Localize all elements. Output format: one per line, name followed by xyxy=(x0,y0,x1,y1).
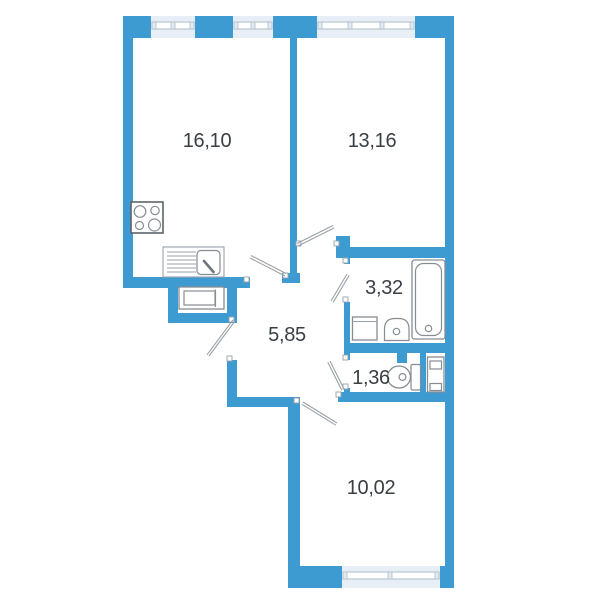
window-mullion xyxy=(388,572,392,579)
door-swing xyxy=(303,402,337,423)
wall-segment xyxy=(227,360,237,407)
walls xyxy=(123,16,454,588)
door-swing xyxy=(330,361,344,389)
drain-icon xyxy=(393,328,399,334)
window-mullion xyxy=(190,22,194,29)
door-jamb xyxy=(343,297,348,302)
room-label-wc: 1,36 xyxy=(352,367,390,389)
utility-appliance xyxy=(428,357,445,392)
door-jamb xyxy=(227,356,232,361)
window-mullion xyxy=(152,22,156,29)
window-frame xyxy=(318,22,414,29)
door-swing xyxy=(209,321,235,356)
window-mullion xyxy=(251,22,255,29)
wall-segment xyxy=(344,302,350,343)
toilet-tank xyxy=(411,365,421,391)
hall-cabinet xyxy=(179,287,224,309)
window-mullion xyxy=(171,22,175,29)
door-jamb xyxy=(244,277,249,282)
door-swing xyxy=(297,226,333,244)
room-label-bathroom: 3,32 xyxy=(365,277,403,299)
floor-plan: 16,10 13,16 3,32 5,85 1,36 10,02 xyxy=(0,0,600,600)
window-mullion xyxy=(268,22,272,29)
room-label-bedroom: 13,16 xyxy=(348,130,397,152)
washbasin xyxy=(385,319,410,341)
window-mullion xyxy=(435,572,439,579)
wall-segment xyxy=(344,343,454,353)
door-swing xyxy=(302,404,336,425)
kitchen-sink xyxy=(163,247,224,277)
wall-segment xyxy=(273,16,317,38)
door-jambs xyxy=(227,241,348,403)
door-jamb xyxy=(336,392,341,397)
stove xyxy=(131,202,163,233)
wall-segment xyxy=(168,313,237,323)
wall-segment xyxy=(288,397,300,588)
window-mullion xyxy=(410,22,414,29)
door-jamb xyxy=(343,355,348,360)
wall-segment xyxy=(123,16,133,288)
window-mullion xyxy=(234,22,238,29)
door-swing xyxy=(250,258,285,276)
wall-segment xyxy=(336,247,454,258)
room-label-hallway: 5,85 xyxy=(268,324,306,346)
room-label-bedroom-2: 10,02 xyxy=(347,477,396,499)
wall-segment xyxy=(227,397,300,407)
door-jamb xyxy=(334,241,339,246)
floor-plan-page: 16,10 13,16 3,32 5,85 1,36 10,02 xyxy=(0,0,600,600)
wall-segment xyxy=(445,16,454,588)
window-mullion xyxy=(318,22,322,29)
window-mullion xyxy=(348,22,352,29)
wall-segment xyxy=(338,392,454,402)
door-swing xyxy=(328,362,342,390)
door-swing xyxy=(298,228,334,246)
washing-machine xyxy=(353,317,378,340)
door-swing xyxy=(251,256,286,274)
door-swing xyxy=(207,320,233,355)
window-mullion xyxy=(380,22,384,29)
wall-segment xyxy=(440,566,454,588)
door-jamb xyxy=(343,258,348,263)
window-mullion xyxy=(343,572,347,579)
wall-segment xyxy=(397,353,407,363)
bathtub xyxy=(412,260,445,339)
toilet xyxy=(388,365,421,391)
door-jamb xyxy=(294,398,299,403)
wall-segment xyxy=(195,16,233,38)
room-label-kitchen-living: 16,10 xyxy=(183,130,232,152)
